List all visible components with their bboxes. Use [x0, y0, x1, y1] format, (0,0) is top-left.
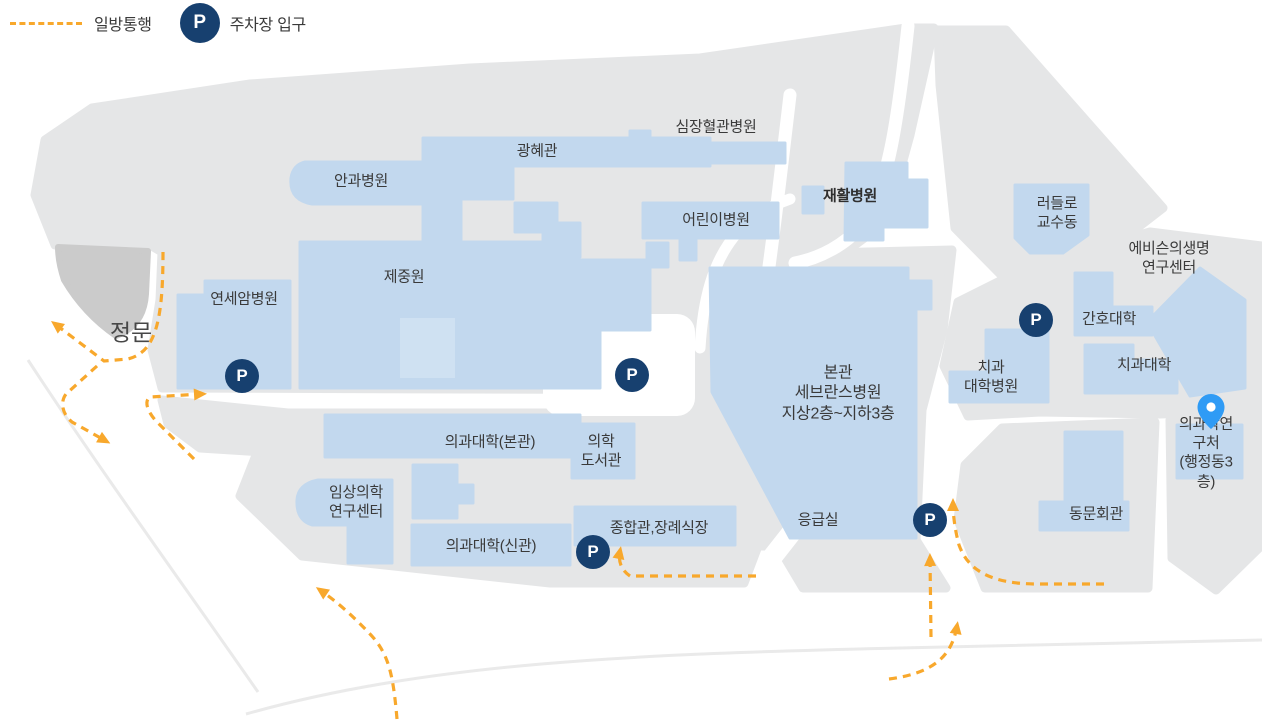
- road-outline: [246, 640, 1262, 714]
- building-eye-hospital: [291, 162, 423, 204]
- parking-nursing-icon: P: [1019, 303, 1053, 337]
- building-eye-annex: [423, 168, 461, 245]
- building-annex-d: [680, 232, 696, 260]
- campus-map: 일방통행 P 주차장 입구 심장혈관병원광혜관안과병원어린이병원재활병원러들로 …: [0, 0, 1262, 720]
- building-mid-annex-tab: [457, 485, 473, 503]
- building-medical-library: [572, 424, 634, 478]
- building-children-hospital: [643, 203, 778, 238]
- building-jejungwon: [300, 242, 650, 388]
- destination-pin-icon: [1198, 394, 1225, 434]
- parking-symbol: P: [193, 12, 206, 34]
- building-med-college-main: [325, 415, 580, 457]
- parking-emergency-icon: P: [913, 503, 947, 537]
- legend: 일방통행 P 주차장 입구: [0, 0, 306, 46]
- building-rehab-hospital: [845, 163, 927, 240]
- building-gwanghye-bar: [508, 138, 710, 166]
- one-way-route: [320, 590, 397, 719]
- one-way-route: [63, 366, 106, 441]
- one-way-dash-sample: [10, 22, 82, 25]
- main-gate-wedge: [58, 247, 148, 336]
- parking-cancer-icon: P: [225, 359, 259, 393]
- building-jejungwon-court: [400, 318, 455, 378]
- parking-jonghap-icon: P: [576, 535, 610, 569]
- building-mid-annex: [413, 465, 457, 518]
- parking-icon: P: [180, 3, 220, 43]
- building-ludlow: [1015, 185, 1088, 253]
- building-med-college-new: [412, 525, 570, 565]
- building-rehab-annex: [803, 187, 823, 213]
- legend-parking-label: 주차장 입구: [230, 11, 306, 35]
- parking-plaza-icon: P: [615, 358, 649, 392]
- legend-one-way-label: 일방통행: [94, 11, 152, 35]
- one-way-route: [889, 626, 957, 679]
